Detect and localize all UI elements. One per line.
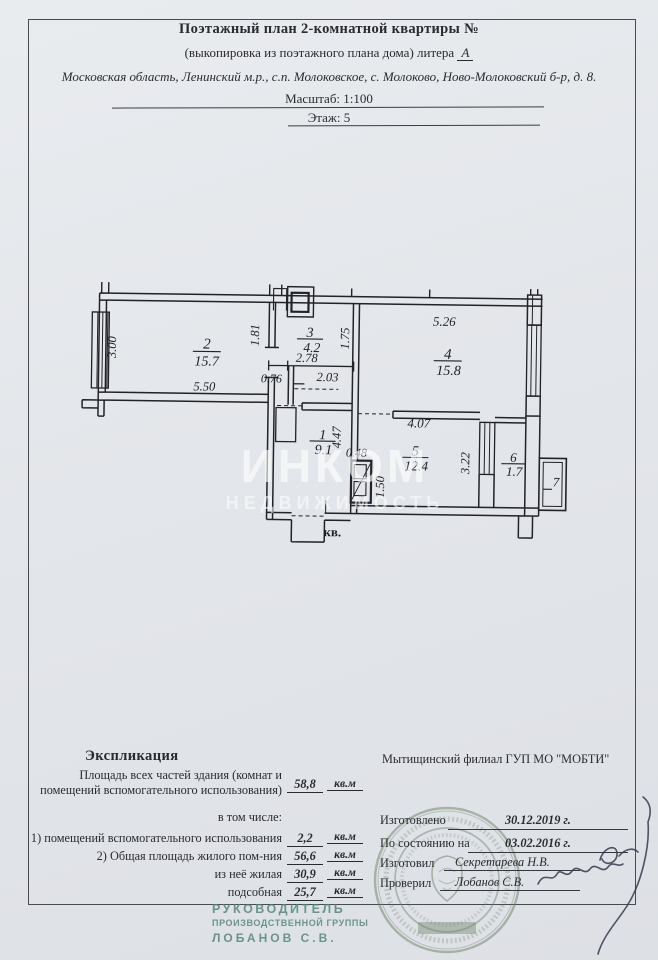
total-label: Площадь всех частей здания (комнат и пом… <box>30 768 282 797</box>
plan-room-labels: 2 15.7 3 4.2 4 15.8 1 9.1 5 12.4 6 1.7 7… <box>192 324 562 542</box>
asof-label: По состоянию на <box>380 836 470 851</box>
address-line: Московская область, Ленинский м.р., с.п.… <box>0 69 658 85</box>
total-unit: кв.м <box>327 778 363 791</box>
checker-label: Проверил <box>380 876 431 891</box>
stamp-line-1: РУКОВОДИТЕЛЬ <box>212 902 368 916</box>
approval-stamp: РУКОВОДИТЕЛЬ ПРОИЗВОДСТВЕННОЙ ГРУППЫ ЛОБ… <box>212 902 368 945</box>
floor-label: Этаж: 5 <box>0 110 658 126</box>
subtitle-text: (выкопировка из поэтажного плана дома) л… <box>185 45 455 60</box>
row-unit: кв.м <box>327 867 363 880</box>
office-name: Мытищинский филиал ГУП МО "МОБТИ" <box>382 752 628 767</box>
dim-3-00: 3.00 <box>105 335 119 359</box>
made-date: 30.12.2019 г. <box>505 813 571 828</box>
dim-1-50: 1.50 <box>373 475 387 498</box>
dim-2-78: 2.78 <box>296 351 319 365</box>
room2-number: 2 <box>203 336 211 352</box>
asof-date: 03.02.2016 г. <box>505 836 571 851</box>
room1-number: 1 <box>319 428 326 443</box>
row-value: 2,2 <box>287 831 323 847</box>
author-label: Изготовил <box>380 856 434 871</box>
explication-heading: Экспликация <box>85 748 178 765</box>
dim-0-48: 0.48 <box>346 445 367 459</box>
scanned-floor-plan-document: Поэтажный план 2-комнатной квартиры № (в… <box>0 0 658 960</box>
room4-area: 15.8 <box>436 364 461 379</box>
dim-3-22: 3.22 <box>458 452 472 475</box>
dim-5-50: 5.50 <box>193 379 216 393</box>
checker-name: Лобанов С.В. <box>455 875 524 890</box>
stamp-line-2: ПРОИЗВОДСТВЕННОЙ ГРУППЫ <box>212 918 368 928</box>
row-unit: кв.м <box>327 885 363 898</box>
row-value: 56,6 <box>287 849 323 865</box>
row-label: 1) помещений вспомогательного использова… <box>30 831 282 846</box>
dim-2-03: 2.03 <box>316 370 338 384</box>
room6-area: 1.7 <box>506 464 523 479</box>
room4-number: 4 <box>444 347 452 363</box>
subtitle: (выкопировка из поэтажного плана дома) л… <box>0 45 658 61</box>
entrance-label: кв. <box>323 524 341 539</box>
floor-plan-drawing: 2 15.7 3 4.2 4 15.8 1 9.1 5 12.4 6 1.7 7… <box>38 266 587 559</box>
dim-5-26: 5.26 <box>433 314 456 329</box>
dim-4-47: 4.47 <box>330 426 344 449</box>
stamp-line-3: ЛОБАНОВ С.В. <box>212 931 368 945</box>
row-label: из неё жилая <box>30 867 282 882</box>
room2-area: 15.7 <box>194 354 220 369</box>
page-title: Поэтажный план 2-комнатной квартиры № <box>0 21 658 38</box>
room6-number: 6 <box>510 450 517 465</box>
room5-area: 12.4 <box>404 458 428 473</box>
including-label: в том числе: <box>30 810 282 825</box>
plan-walls <box>80 282 569 546</box>
scale-label: Масштаб: 1:100 <box>0 91 658 107</box>
row-label: 2) Общая площадь жилого пом-ния <box>30 849 282 864</box>
dim-0-76: 0.76 <box>261 371 282 385</box>
made-label: Изготовлено <box>380 813 446 828</box>
litera-value: А <box>457 45 473 61</box>
room7-number: 7 <box>553 474 560 489</box>
total-value: 58,8 <box>287 777 323 793</box>
row-label: подсобная <box>30 885 282 900</box>
row-unit: кв.м <box>327 849 363 862</box>
room5-number: 5 <box>412 444 419 459</box>
dim-4-07: 4.07 <box>407 415 430 430</box>
row-unit: кв.м <box>327 831 363 844</box>
dim-1-81: 1.81 <box>248 324 262 346</box>
row-value: 30,9 <box>287 867 323 883</box>
row-value: 25,7 <box>287 885 323 901</box>
room3-number: 3 <box>305 326 313 341</box>
dim-1-75: 1.75 <box>338 327 352 349</box>
seal-banner <box>418 922 476 934</box>
author-name: Секретарева Н.В. <box>455 855 550 870</box>
